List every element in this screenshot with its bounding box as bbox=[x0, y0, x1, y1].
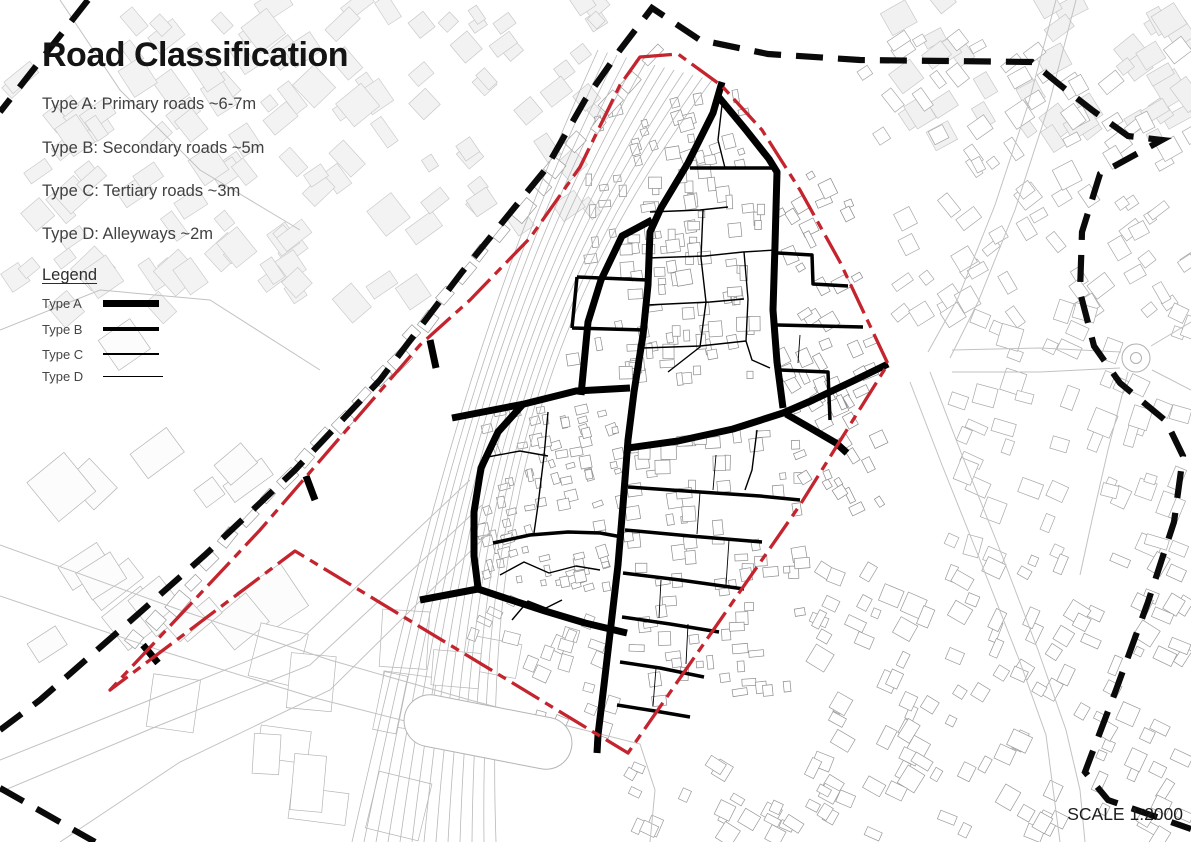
roundabout bbox=[1122, 344, 1150, 372]
building-fabric-layer bbox=[1, 0, 1191, 842]
depot-building-outline bbox=[400, 690, 577, 773]
road-classification-drawing: Road Classification Type A: Primary road… bbox=[0, 0, 1191, 842]
map-canvas bbox=[0, 0, 1191, 842]
